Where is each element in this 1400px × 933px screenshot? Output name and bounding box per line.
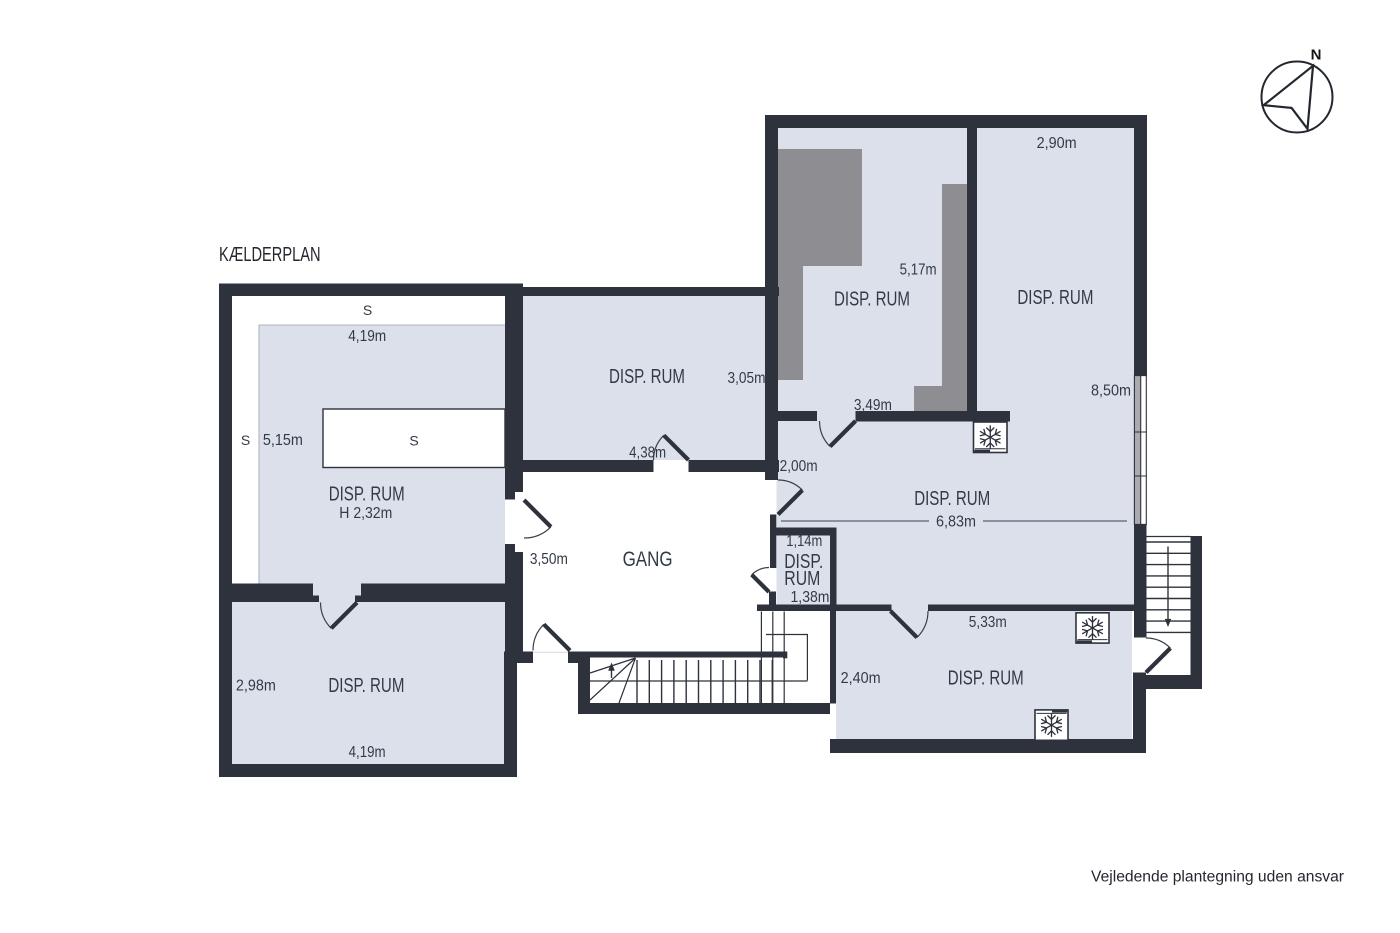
svg-text:RUM: RUM [784,568,820,590]
svg-text:DISP. RUM: DISP. RUM [328,675,404,697]
svg-text:2,98m: 2,98m [236,678,276,695]
svg-text:3,49m: 3,49m [854,397,892,414]
svg-text:4,19m: 4,19m [349,744,386,761]
svg-text:2,00m: 2,00m [780,458,818,475]
svg-text:S: S [409,432,418,448]
svg-text:2,90m: 2,90m [1037,135,1077,152]
svg-text:5,17m: 5,17m [900,261,937,278]
svg-text:DISP. RUM: DISP. RUM [329,483,405,505]
svg-text:S: S [241,432,250,448]
svg-text:8,50m: 8,50m [1091,382,1131,399]
svg-text:1,14m: 1,14m [786,533,822,550]
svg-text:6,83m: 6,83m [936,513,976,530]
svg-text:1,38m: 1,38m [791,589,830,606]
svg-text:4,38m: 4,38m [629,444,666,461]
svg-text:KÆLDERPLAN: KÆLDERPLAN [219,243,321,266]
svg-text:5,15m: 5,15m [263,432,303,449]
svg-text:N: N [1311,47,1322,64]
svg-text:3,05m: 3,05m [728,370,766,387]
svg-text:DISP. RUM: DISP. RUM [609,366,685,388]
svg-text:GANG: GANG [623,547,673,571]
svg-text:2,40m: 2,40m [841,670,881,687]
svg-text:5,33m: 5,33m [969,614,1007,631]
svg-text:DISP. RUM: DISP. RUM [914,488,990,510]
svg-text:H 2,32m: H 2,32m [339,505,392,522]
svg-text:DISP. RUM: DISP. RUM [834,288,910,310]
svg-text:3,50m: 3,50m [530,551,568,568]
svg-text:DISP. RUM: DISP. RUM [1017,287,1093,309]
svg-text:4,19m: 4,19m [348,328,386,345]
svg-text:DISP. RUM: DISP. RUM [948,667,1024,689]
svg-text:Vejledende plantegning uden an: Vejledende plantegning uden ansvar [1091,869,1344,886]
svg-text:S: S [363,302,372,318]
